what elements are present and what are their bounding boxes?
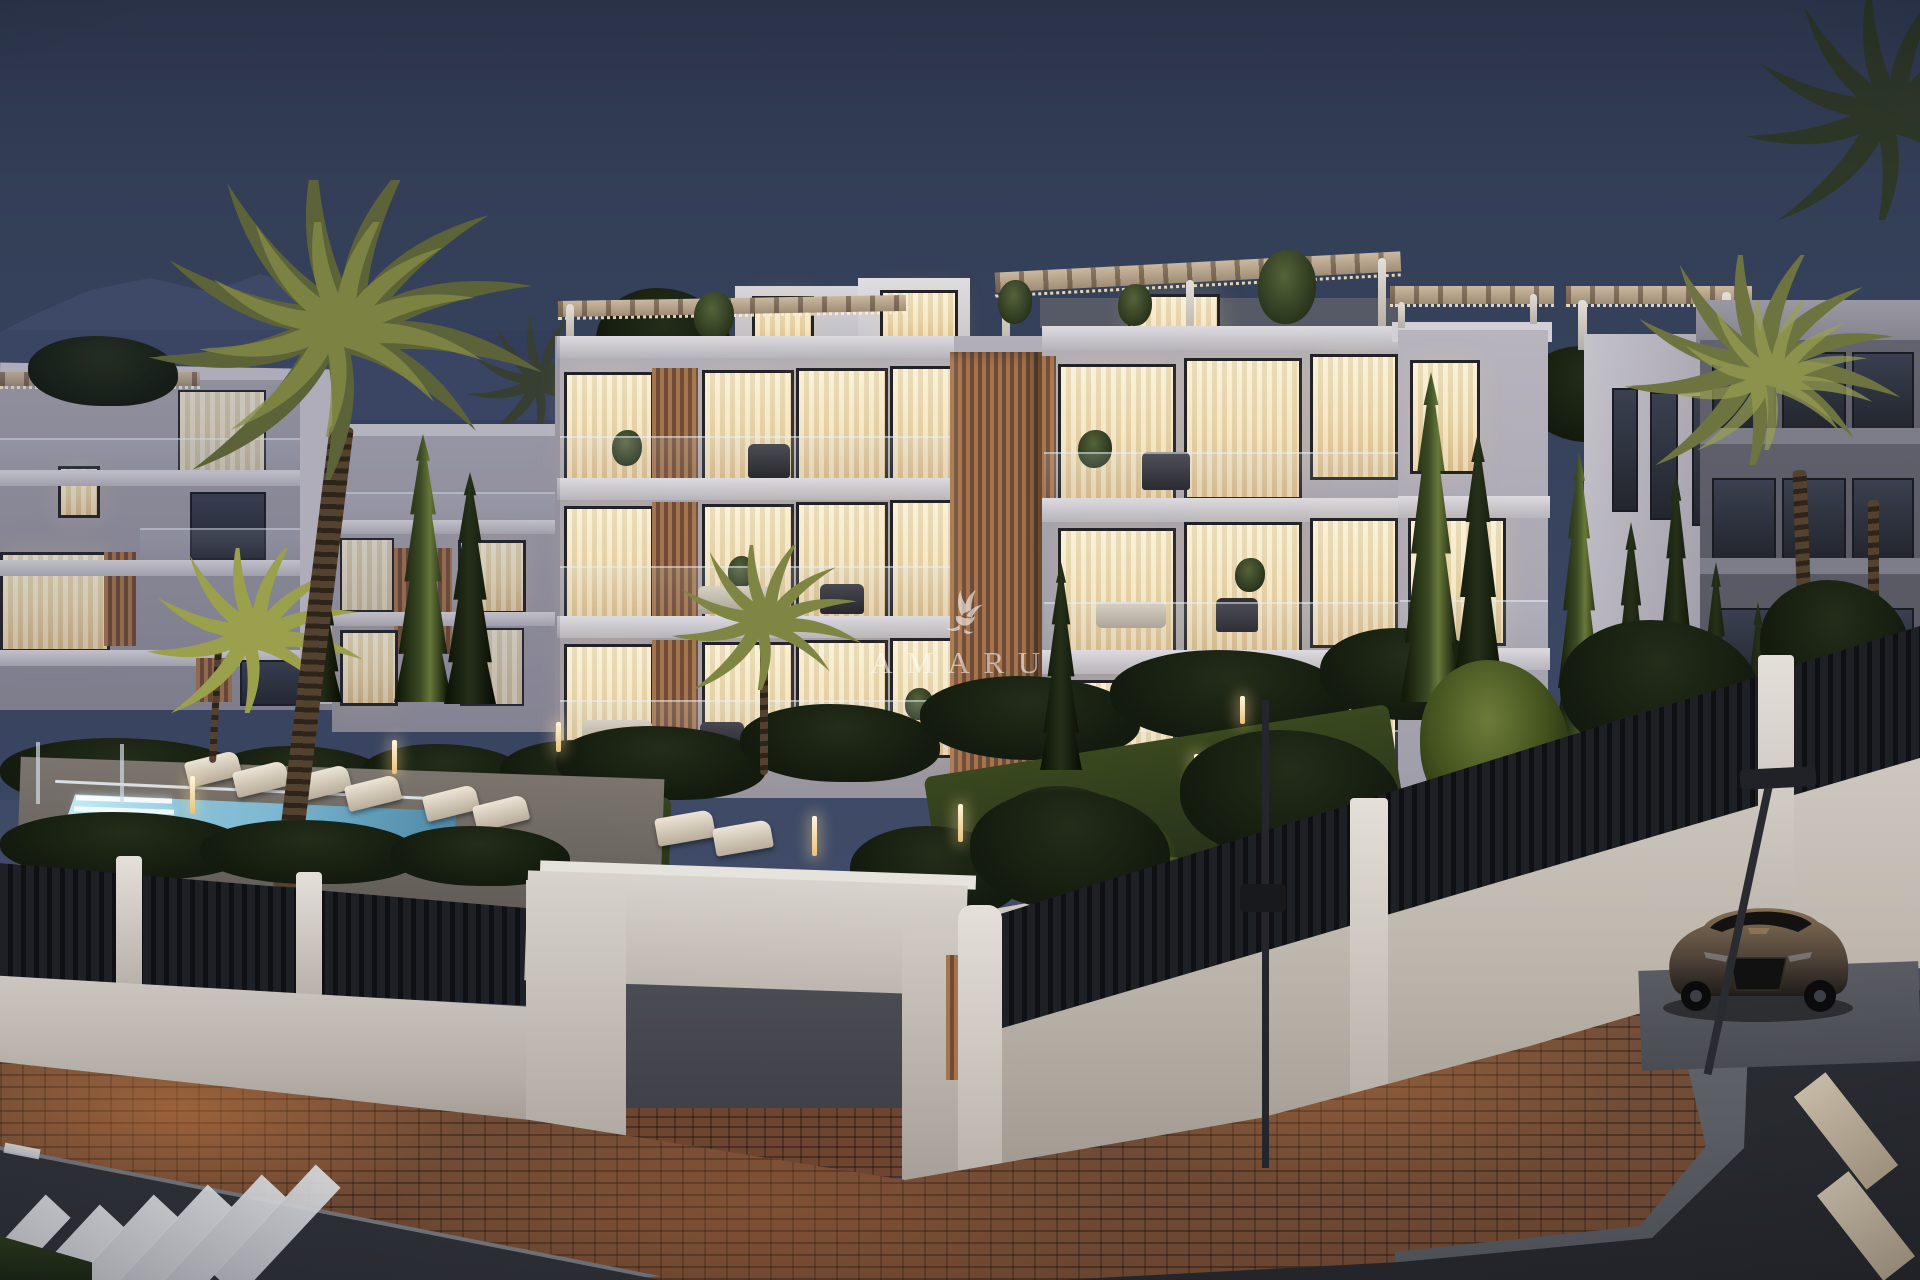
hummingbird-flourish-logo-icon <box>939 580 985 640</box>
palm-tree-lit <box>1652 300 1892 450</box>
logo-body <box>956 616 975 626</box>
architectural-dusk-render: AMARU <box>0 0 1920 1280</box>
parked-car <box>1648 858 1868 1028</box>
logo-tail-flourish <box>946 625 960 631</box>
street-lamp-head <box>1240 884 1286 912</box>
car-wheel-rim <box>1690 990 1702 1002</box>
bollard-light <box>556 722 561 752</box>
glass-fence-post <box>120 744 124 804</box>
window-dark <box>1782 478 1846 560</box>
window-dark <box>1712 478 1776 560</box>
pergola-post <box>1530 294 1537 324</box>
rooftop-tree <box>694 292 734 340</box>
bollard-light <box>392 740 397 774</box>
rooftop-olive-tree <box>1258 250 1316 324</box>
bollard-light <box>812 816 817 856</box>
balcony-glass-railing <box>332 492 558 522</box>
pergola-post <box>1378 258 1386 330</box>
rooftop-tree <box>1118 284 1152 326</box>
dark-corner-palm <box>1730 0 1920 220</box>
car-grille <box>1730 958 1786 990</box>
floor-slab <box>557 478 954 500</box>
pergola-post <box>1398 302 1405 328</box>
watermark: AMARU <box>822 580 1102 681</box>
palm-tree-lit <box>118 548 388 713</box>
car-wheel-rim <box>1814 990 1826 1002</box>
window-dark <box>1852 478 1914 560</box>
parapet <box>1042 326 1400 350</box>
corner-fence-pillar <box>958 905 1002 1205</box>
street-lamp-head <box>1740 766 1817 790</box>
watermark-brand: AMARU <box>822 645 1102 681</box>
logo-curl <box>964 628 973 633</box>
bollard-light <box>190 776 195 814</box>
garden-lounger <box>712 819 774 857</box>
parapet <box>557 336 954 358</box>
floor-slab <box>332 520 558 534</box>
big-palm-crown-lit <box>168 222 508 437</box>
balcony-plant <box>1235 558 1265 592</box>
balcony-glass-railing <box>1044 452 1398 500</box>
street-lamp-pole <box>1262 700 1269 1168</box>
glass-fence-post <box>36 742 40 804</box>
balcony-glass-railing <box>560 436 952 482</box>
rooftop-tree <box>998 280 1032 324</box>
